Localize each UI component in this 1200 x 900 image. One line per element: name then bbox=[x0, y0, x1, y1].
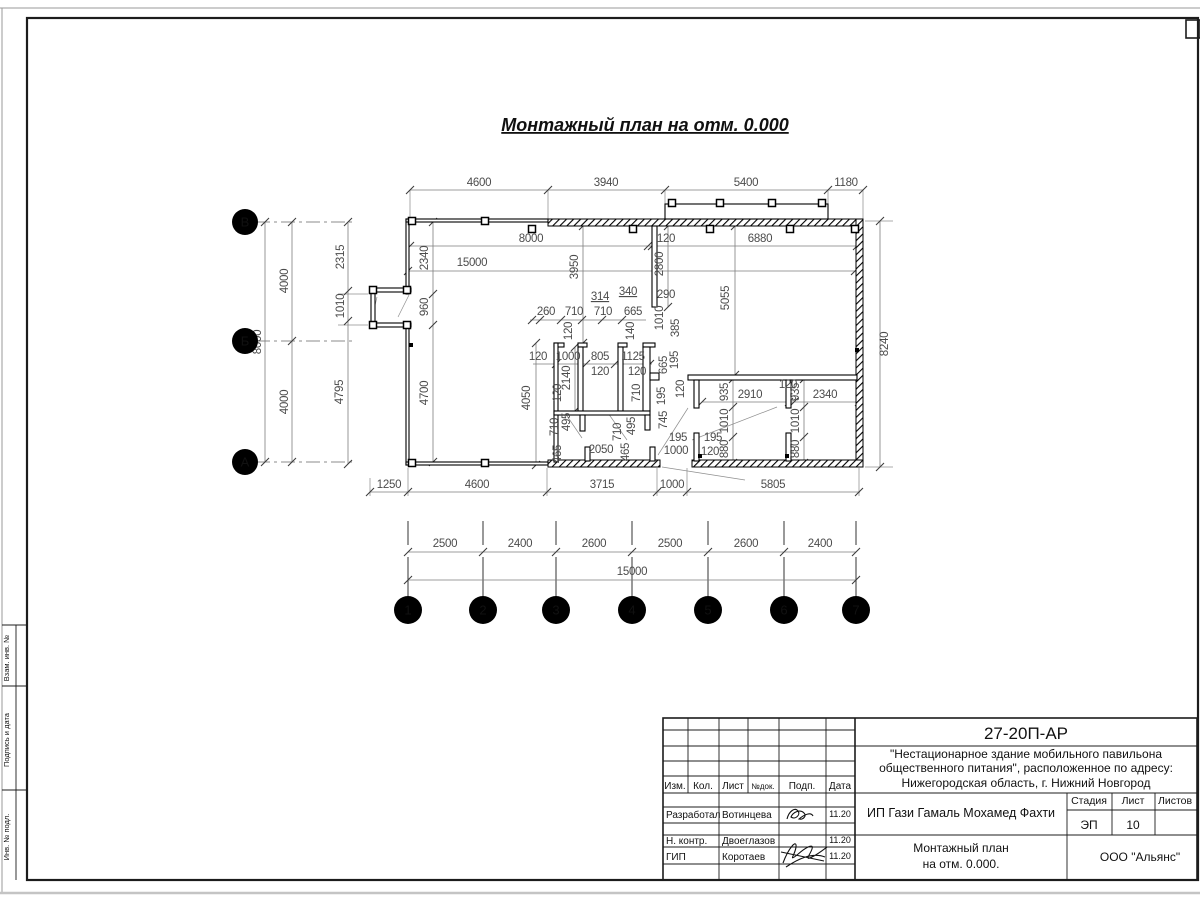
dim-label: 2910 bbox=[738, 389, 762, 401]
column-marker bbox=[404, 322, 411, 329]
dim-label: 120 bbox=[628, 366, 646, 378]
side-stamp: Взам. инв. № Подпись и дата Инв. № подл. bbox=[2, 625, 28, 880]
dim-label: 465 bbox=[620, 443, 632, 461]
axis-label-col: 1 bbox=[404, 603, 411, 618]
axis-label-col: 6 bbox=[780, 603, 787, 618]
wall-partition bbox=[406, 462, 548, 465]
dim-label: 140 bbox=[625, 322, 637, 340]
dim-label: 960 bbox=[419, 298, 431, 316]
row3-name: Коротаев bbox=[722, 852, 765, 863]
dim-label: 4795 bbox=[334, 380, 346, 404]
row1-role: Разработал bbox=[666, 809, 721, 821]
column-marker bbox=[409, 218, 416, 225]
col-data: Дата bbox=[829, 781, 852, 792]
dim-label: 495 bbox=[561, 413, 573, 431]
wall-thick bbox=[856, 219, 863, 467]
project-name-line3: Нижегородская область, г. Нижний Новгоро… bbox=[902, 776, 1151, 790]
wall-partition bbox=[665, 204, 828, 219]
dim-label: 5055 bbox=[720, 286, 732, 310]
column-marker bbox=[482, 218, 489, 225]
sheets-label: Листов bbox=[1158, 795, 1193, 807]
side-label-podpis: Подпись и дата bbox=[2, 712, 11, 767]
axis-label-col: 4 bbox=[628, 603, 635, 618]
stage-label: Стадия bbox=[1071, 795, 1107, 807]
wall-dot bbox=[855, 348, 859, 352]
wall-partition bbox=[406, 219, 548, 222]
dim-label: 710 bbox=[612, 423, 624, 441]
client-name: ИП Гази Гамаль Мохамед Фахти bbox=[867, 806, 1055, 820]
wall-partition bbox=[578, 343, 587, 347]
col-list: Лист bbox=[722, 781, 744, 792]
row2-date: 11.20 bbox=[829, 835, 851, 845]
dim-label: 2315 bbox=[335, 245, 347, 269]
wall-thick bbox=[692, 460, 863, 467]
dim-label: 120 bbox=[552, 384, 564, 402]
dim-label: 1010 bbox=[335, 294, 347, 318]
dim-label: 665 bbox=[624, 306, 642, 318]
wall-partition bbox=[406, 324, 409, 465]
drawing-sheet: Взам. инв. № Подпись и дата Инв. № подл.… bbox=[0, 0, 1200, 900]
dim-label: 120 bbox=[779, 379, 797, 391]
sheet-value: 10 bbox=[1126, 818, 1140, 832]
axis-label-col: 5 bbox=[704, 603, 711, 618]
dim-label: 935 bbox=[719, 383, 731, 401]
dim-label: 314 bbox=[591, 291, 610, 303]
dim-label: 385 bbox=[670, 319, 682, 337]
column-marker bbox=[787, 226, 794, 233]
dim-label: 5400 bbox=[734, 177, 758, 189]
dim-label: 120 bbox=[563, 322, 575, 340]
dim-label: 6880 bbox=[748, 233, 772, 245]
column-marker bbox=[482, 460, 489, 467]
axis-label-row: Б bbox=[241, 334, 250, 349]
dim-label: 1010 bbox=[790, 409, 802, 433]
dim-label: 120 bbox=[675, 380, 687, 398]
dim-label: 1000 bbox=[556, 351, 580, 363]
dim-label: 2340 bbox=[813, 389, 837, 401]
axis-label-row: В bbox=[241, 215, 250, 230]
dim-label: 4600 bbox=[465, 479, 489, 491]
dim-label: 15000 bbox=[617, 566, 647, 578]
dim-label: 1000 bbox=[664, 445, 688, 457]
dim-label: 1000 bbox=[660, 479, 684, 491]
wall-thick bbox=[548, 219, 863, 226]
dim-label: 8000 bbox=[519, 233, 543, 245]
column-marker bbox=[852, 226, 859, 233]
dim-label: 4600 bbox=[467, 177, 491, 189]
column-marker bbox=[630, 226, 637, 233]
wall-thick bbox=[548, 460, 660, 467]
column-marker bbox=[707, 226, 714, 233]
side-label-inv: Инв. № подл. bbox=[2, 814, 11, 861]
floor-plan-svg: Взам. инв. № Подпись и дата Инв. № подл.… bbox=[0, 0, 1200, 900]
doc-title-line2: на отм. 0.000. bbox=[923, 857, 1000, 871]
dim-label: 120 bbox=[657, 233, 675, 245]
dim-label: 805 bbox=[591, 351, 609, 363]
dim-label: 120 bbox=[701, 446, 719, 458]
wall-partition bbox=[580, 415, 585, 431]
dim-label: 195 bbox=[669, 432, 687, 444]
project-name-line2: общественного питания", расположенное по… bbox=[879, 761, 1173, 775]
column-marker bbox=[409, 460, 416, 467]
row2-name: Двоеглазов bbox=[722, 836, 775, 847]
dim-label: 1125 bbox=[621, 351, 645, 363]
dim-label: 4050 bbox=[521, 386, 533, 410]
dim-label: 5805 bbox=[761, 479, 785, 491]
wall-partition bbox=[694, 380, 699, 408]
dim-label: 710 bbox=[549, 418, 561, 436]
dim-label: 195 bbox=[656, 387, 668, 405]
dim-label: 2400 bbox=[508, 538, 532, 550]
company-name: ООО "Альянс" bbox=[1100, 850, 1180, 864]
dim-label: 3950 bbox=[569, 255, 581, 279]
column-marker bbox=[370, 322, 377, 329]
row3-role: ГИП bbox=[666, 852, 686, 863]
axis-label-col: 2 bbox=[479, 603, 486, 618]
wall-dot bbox=[409, 343, 413, 347]
column-marker bbox=[529, 226, 536, 233]
col-kol: Кол. bbox=[693, 781, 713, 792]
wall-dot bbox=[785, 454, 789, 458]
wall-partition bbox=[643, 343, 655, 347]
dim-label: 880 bbox=[719, 440, 731, 458]
dim-label: 1010 bbox=[719, 409, 731, 433]
column-marker bbox=[370, 287, 377, 294]
dim-label: 3715 bbox=[590, 479, 614, 491]
dim-label: 2500 bbox=[658, 538, 682, 550]
column-marker bbox=[717, 200, 724, 207]
wall-partition bbox=[645, 415, 650, 430]
sheet-label: Лист bbox=[1122, 795, 1145, 807]
dim-label: 15000 bbox=[457, 257, 487, 269]
doc-title-line1: Монтажный план bbox=[913, 841, 1009, 855]
dim-label: 3940 bbox=[594, 177, 618, 189]
wall-partition bbox=[688, 375, 857, 380]
wall-partition bbox=[650, 447, 655, 461]
axis-label-col: 3 bbox=[552, 603, 559, 618]
stage-value: ЭП bbox=[1080, 818, 1097, 832]
dim-label: 710 bbox=[594, 306, 612, 318]
dim-label: 1250 bbox=[377, 479, 401, 491]
dim-label: 710 bbox=[565, 306, 583, 318]
dim-label: 2800 bbox=[654, 252, 666, 276]
dim-label: 2500 bbox=[433, 538, 457, 550]
dim-label: 290 bbox=[657, 289, 675, 301]
dim-label: 1010 bbox=[654, 306, 666, 330]
dim-label: 745 bbox=[658, 411, 670, 429]
dim-label: 8240 bbox=[879, 332, 891, 356]
dim-label: 4000 bbox=[279, 269, 291, 293]
dim-label: 2600 bbox=[734, 538, 758, 550]
dim-label: 2600 bbox=[582, 538, 606, 550]
dim-label: 340 bbox=[619, 286, 637, 298]
leader-line bbox=[398, 295, 409, 317]
col-ndok: №док. bbox=[751, 782, 774, 791]
dim-label: 2340 bbox=[419, 246, 431, 270]
wall-partition bbox=[618, 343, 627, 347]
dim-label: 4700 bbox=[419, 381, 431, 405]
row2-role: Н. контр. bbox=[666, 836, 707, 847]
column-marker bbox=[819, 200, 826, 207]
col-izm: Изм. bbox=[664, 781, 685, 792]
column-marker bbox=[404, 287, 411, 294]
axis-label-row: А bbox=[241, 455, 250, 470]
project-name-line1: "Нестационарное здание мобильного павиль… bbox=[890, 747, 1162, 761]
dim-label: 120 bbox=[591, 366, 609, 378]
col-podp: Подп. bbox=[789, 781, 816, 792]
dim-label: 880 bbox=[790, 440, 802, 458]
doc-code: 27-20П-АР bbox=[984, 724, 1068, 743]
row1-name: Вотинцева bbox=[722, 810, 772, 821]
dim-label: 2050 bbox=[589, 444, 613, 456]
column-marker bbox=[769, 200, 776, 207]
dim-label: 2400 bbox=[808, 538, 832, 550]
signature-1 bbox=[787, 809, 813, 819]
dim-label: 495 bbox=[626, 417, 638, 435]
axis-label-col: 7 bbox=[852, 603, 859, 618]
row1-date: 11.20 bbox=[829, 809, 851, 819]
dim-label: 465 bbox=[552, 445, 564, 463]
wall-partition bbox=[406, 219, 409, 294]
dim-label: 1180 bbox=[834, 177, 858, 189]
dim-label: 260 bbox=[537, 306, 555, 318]
drawing-title: Монтажный план на отм. 0.000 bbox=[501, 115, 788, 135]
dim-label: 710 bbox=[631, 384, 643, 402]
dim-label: 4000 bbox=[279, 390, 291, 414]
dim-label: 120 bbox=[529, 351, 547, 363]
dim-label: 195 bbox=[669, 351, 681, 369]
row3-date: 11.20 bbox=[829, 851, 851, 861]
column-marker bbox=[669, 200, 676, 207]
side-label-vzam: Взам. инв. № bbox=[2, 635, 11, 681]
